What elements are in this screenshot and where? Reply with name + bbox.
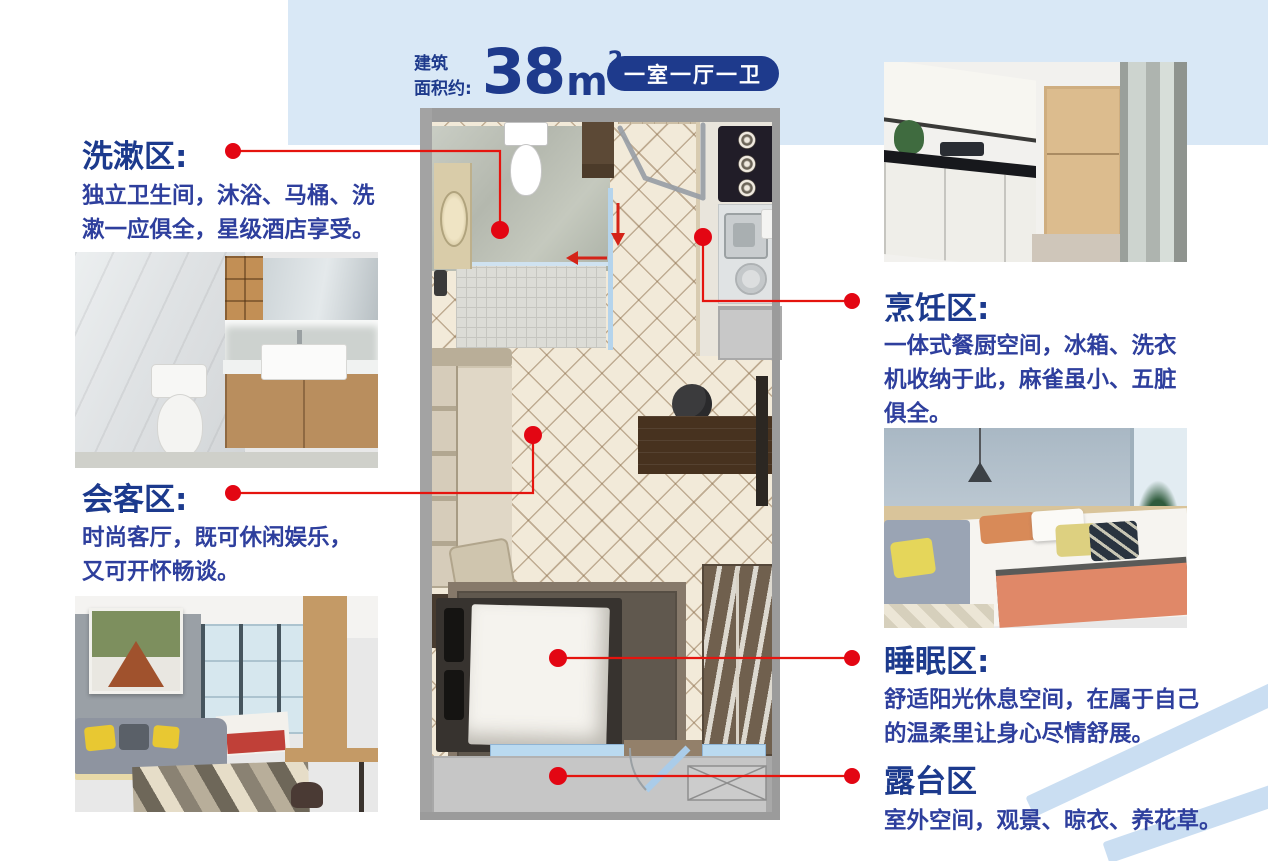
burner <box>738 131 756 149</box>
sink <box>261 344 347 380</box>
vanity-counter <box>434 163 472 269</box>
area-prefix-line1: 建筑 <box>414 52 472 77</box>
area-value: 38 <box>482 44 564 100</box>
bathroom-glass-door <box>608 188 613 350</box>
bedroom-photo <box>884 428 1187 628</box>
terrace-area <box>434 756 766 816</box>
plant <box>894 120 924 154</box>
terrace-area-title: 露台区 <box>884 756 977 801</box>
cooking-area-desc: 一体式餐厨空间，冰箱、洗衣机收纳于此，麻雀虽小、五脏俱全。 <box>884 330 1198 431</box>
tv-panel <box>756 376 768 506</box>
living-room-photo <box>75 596 378 812</box>
vanity-cabinet <box>225 374 378 448</box>
bed-pillow <box>444 670 464 720</box>
brochure-page: 建筑 面积约: 38 m 2 一室一厅一卫 洗漱区: 独立卫生间，沐浴、马桶、洗… <box>0 0 1268 861</box>
geometric-rug <box>132 761 310 812</box>
terrace-area-desc: 室外空间，观景、晾衣、养花草。 <box>884 805 1268 839</box>
wall-art <box>89 608 183 694</box>
navy-pillow <box>1089 520 1140 561</box>
desk-leg <box>359 762 364 812</box>
kitchen-photo <box>884 62 1187 262</box>
pendant-wire <box>979 428 981 464</box>
entry-cabinet <box>582 122 614 178</box>
countertop-items <box>940 142 984 156</box>
art-triangle <box>108 641 164 687</box>
yellow-pillow <box>890 537 937 578</box>
wardrobe-rail <box>736 568 739 748</box>
wall <box>772 108 780 818</box>
orange-pillow <box>979 512 1037 545</box>
kettle <box>735 263 767 295</box>
yellow-pillow <box>84 724 116 751</box>
bathroom-photo <box>75 252 378 468</box>
burner <box>738 155 756 173</box>
pendant-lamp <box>968 462 992 482</box>
toilet <box>151 364 207 398</box>
sleeping-area-desc: 舒适阳光休息空间，在属于自己的温柔里让身心尽情舒展。 <box>884 684 1206 752</box>
area-unit: m <box>566 44 608 102</box>
burner <box>738 179 756 197</box>
red-blanket <box>226 730 285 754</box>
fridge <box>1120 62 1187 262</box>
wall <box>420 108 780 122</box>
sleeping-area-title: 睡眠区: <box>884 636 989 681</box>
bed-duvet <box>468 604 610 748</box>
base-cabinet <box>884 162 1036 262</box>
living-area-title: 会客区: <box>82 474 187 519</box>
toilet <box>157 394 203 458</box>
wood-column <box>303 596 347 748</box>
floor <box>75 452 378 468</box>
wardrobe <box>702 564 776 756</box>
stool <box>291 782 323 808</box>
cooking-area-title: 烹饪区: <box>884 283 989 328</box>
layout-badge: 一室一厅一卫 <box>607 56 779 91</box>
floorplan <box>420 108 780 820</box>
area-header: 建筑 面积约: 38 m 2 <box>414 44 623 102</box>
living-area-desc: 时尚客厅，既可休闲娱乐，又可开怀畅谈。 <box>82 522 374 590</box>
kitchen-sink-zone <box>718 204 780 304</box>
floor <box>884 604 994 628</box>
wall <box>420 812 780 820</box>
bed-pillow <box>444 608 464 662</box>
toilet-tank <box>504 122 548 146</box>
wood-desk <box>285 748 378 762</box>
toilet-bowl <box>510 144 542 196</box>
washbasin <box>440 191 468 247</box>
floor <box>1032 234 1124 262</box>
gray-pillow <box>119 724 149 750</box>
washing-area-title: 洗漱区: <box>82 131 187 176</box>
wood-shelf <box>225 256 263 320</box>
shower-fixture <box>434 270 447 296</box>
area-prefix: 建筑 面积约: <box>414 44 472 101</box>
kitchen-counter <box>696 118 780 356</box>
kitchen-cooktop <box>718 126 778 202</box>
wall <box>420 108 432 818</box>
sink-bowl <box>733 223 755 247</box>
area-prefix-line2: 面积约: <box>414 77 472 102</box>
wood-door <box>1044 86 1122 242</box>
desk <box>638 416 772 474</box>
shower-glass-divider <box>456 262 608 266</box>
yellow-pillow <box>152 725 180 749</box>
shower-area <box>456 266 606 348</box>
sofa-armrest <box>428 348 512 368</box>
washing-area-desc: 独立卫生间，沐浴、马桶、洗漱一应俱全，星级酒店享受。 <box>82 180 396 248</box>
